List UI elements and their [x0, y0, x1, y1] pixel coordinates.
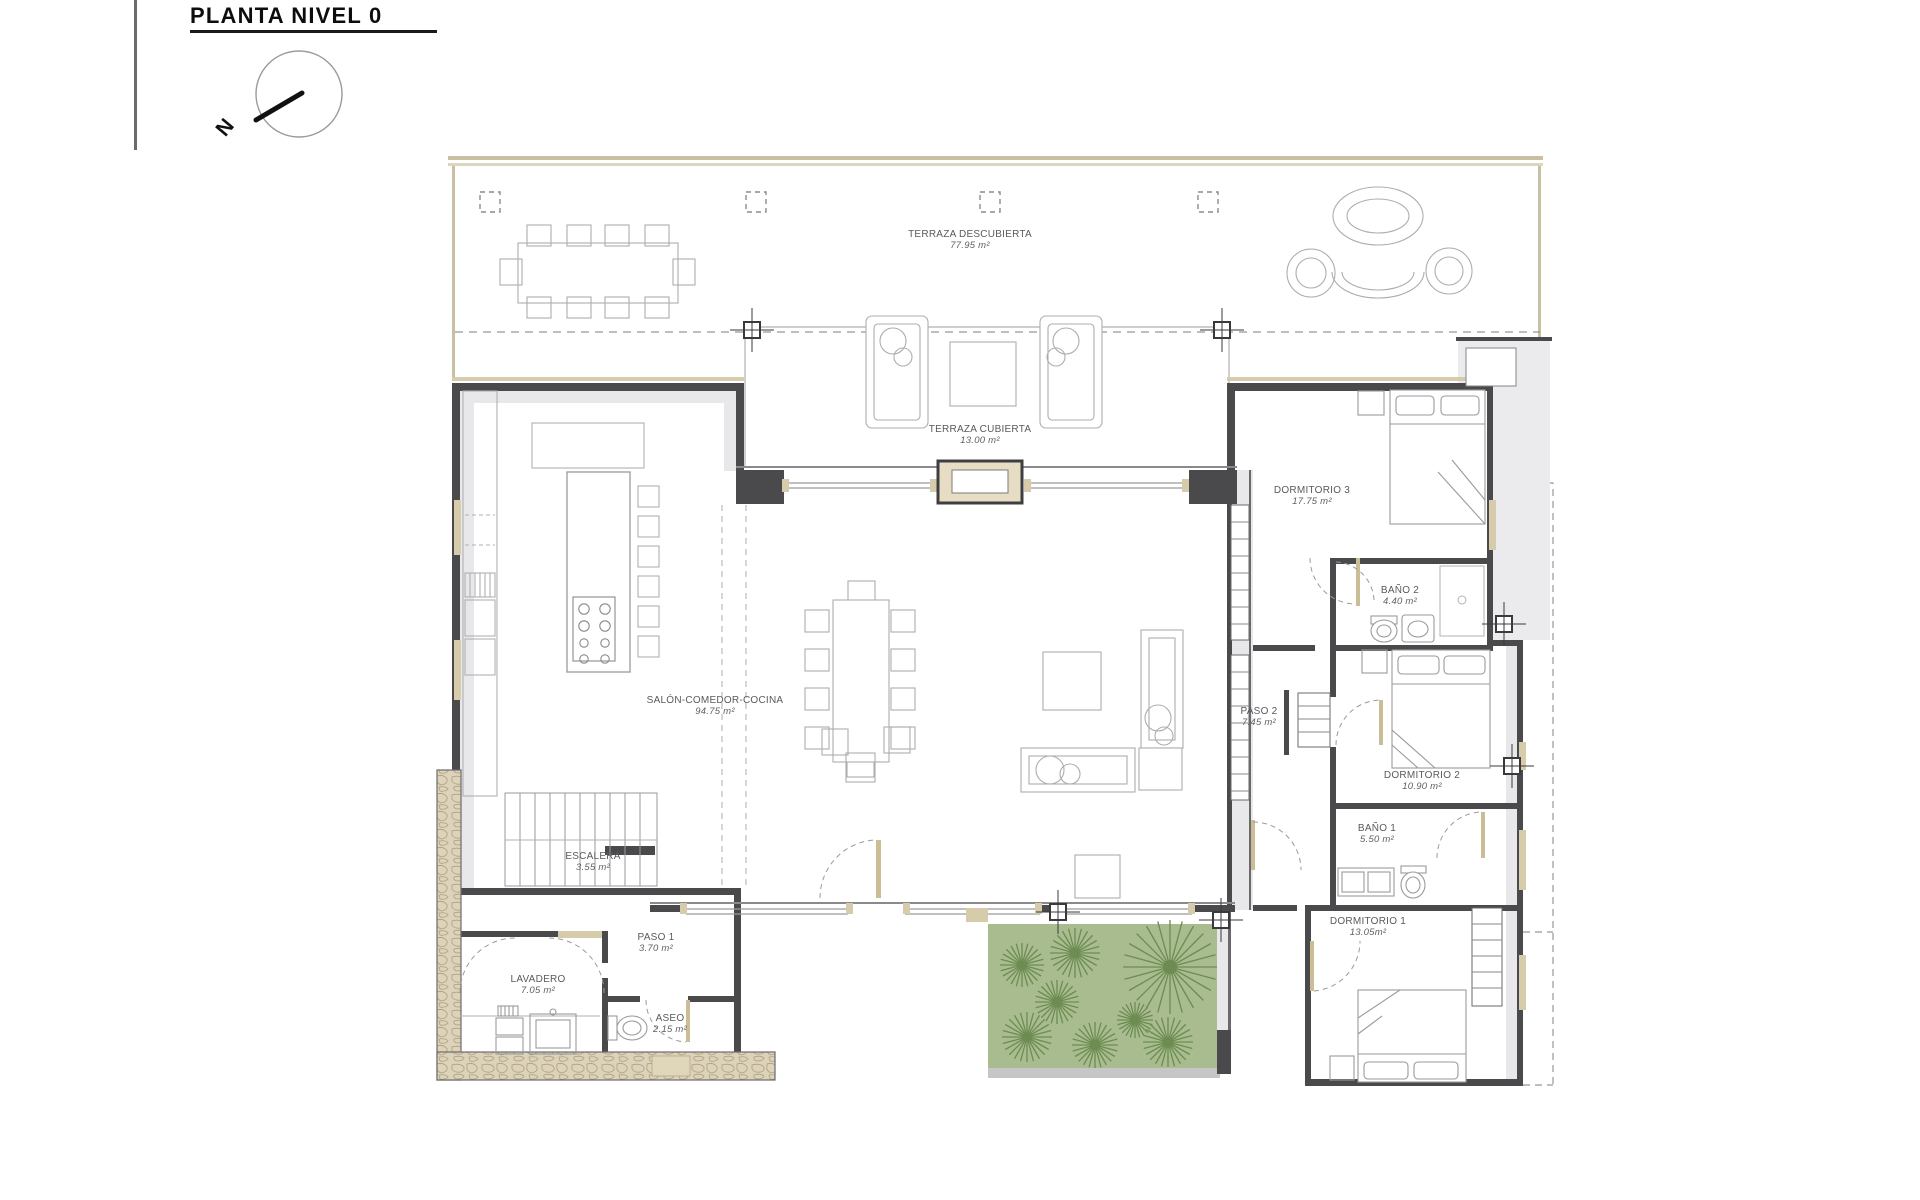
page-title: PLANTA NIVEL 0 [190, 3, 382, 29]
room-area: 4.40 m² [1381, 596, 1419, 607]
room-name: DORMITORIO 2 [1384, 770, 1460, 781]
room-label-bano-2: BAÑO 2 4.40 m² [1381, 585, 1419, 607]
aseo-fixtures [608, 1016, 647, 1040]
room-name: ASEO [656, 1013, 685, 1024]
room-area: 7.05 m² [511, 985, 566, 996]
room-area: 17.75 m² [1274, 496, 1350, 507]
floorplan-sheet: PLANTA NIVEL 0 N TERRAZA DESCUBIERTA 77.… [0, 0, 1920, 1200]
floorplan-drawing [0, 0, 1920, 1200]
room-name: BAÑO 1 [1358, 823, 1396, 834]
room-area: 10.90 m² [1384, 781, 1460, 792]
room-area: 13.00 m² [929, 435, 1032, 446]
column-grid-markers [480, 192, 1218, 212]
room-label-aseo: ASEO 2.15 m² [653, 1013, 687, 1035]
room-name: TERRAZA DESCUBIERTA [908, 229, 1032, 240]
bar-stools [638, 486, 659, 657]
garden-patch [988, 920, 1220, 1078]
room-label-paso-1: PASO 1 3.70 m² [638, 932, 675, 954]
room-area: 3.55 m² [565, 862, 620, 873]
room-label-terraza-cubierta: TERRAZA CUBIERTA 13.00 m² [929, 424, 1032, 446]
room-area: 2.15 m² [653, 1024, 687, 1035]
room-label-terraza-descubierta: TERRAZA DESCUBIERTA 77.95 m² [908, 229, 1032, 251]
room-name: DORMITORIO 3 [1274, 485, 1350, 496]
outdoor-dining-set [500, 225, 695, 318]
room-name: DORMITORIO 1 [1330, 916, 1406, 927]
room-label-dormitorio-3: DORMITORIO 3 17.75 m² [1274, 485, 1350, 507]
bano1-fixtures [1338, 866, 1426, 898]
room-label-paso-2: PASO 2 7.45 m² [1241, 706, 1278, 728]
room-label-bano-1: BAÑO 1 5.50 m² [1358, 823, 1396, 845]
bed-dormitorio-1 [1330, 990, 1466, 1082]
lavadero-fixtures [460, 1006, 600, 1054]
room-area: 3.70 m² [638, 943, 675, 954]
room-name: TERRAZA CUBIERTA [929, 424, 1032, 435]
room-name: LAVADERO [511, 974, 566, 985]
room-label-salon-comedor-cocina: SALÓN-COMEDOR-COCINA 94.75 m² [647, 695, 784, 717]
room-label-escalera: ESCALERA 3.55 m² [565, 851, 620, 873]
room-area: 5.50 m² [1358, 834, 1396, 845]
room-area: 94.75 m² [647, 706, 784, 717]
bed-dormitorio-3 [1358, 390, 1485, 524]
roof-terrace-block [1466, 348, 1516, 386]
room-name: ESCALERA [565, 851, 620, 862]
room-label-dormitorio-2: DORMITORIO 2 10.90 m² [1384, 770, 1460, 792]
room-name: PASO 1 [638, 932, 675, 943]
north-arrow [256, 51, 342, 137]
fireplace-unit [938, 461, 1022, 503]
room-area: 13.05m² [1330, 927, 1406, 938]
room-label-lavadero: LAVADERO 7.05 m² [511, 974, 566, 996]
covered-terrace-set [866, 316, 1102, 428]
room-name: BAÑO 2 [1381, 585, 1419, 596]
room-area: 77.95 m² [908, 240, 1032, 251]
title-underline [190, 30, 437, 33]
sofa-corner [1021, 630, 1183, 898]
room-label-dormitorio-1: DORMITORIO 1 13.05m² [1330, 916, 1406, 938]
room-area: 7.45 m² [1241, 717, 1278, 728]
kitchen [463, 391, 659, 796]
lounge-set [1287, 187, 1472, 298]
room-name: PASO 2 [1241, 706, 1278, 717]
sheet-edge-line [134, 0, 137, 150]
room-name: SALÓN-COMEDOR-COCINA [647, 695, 784, 706]
